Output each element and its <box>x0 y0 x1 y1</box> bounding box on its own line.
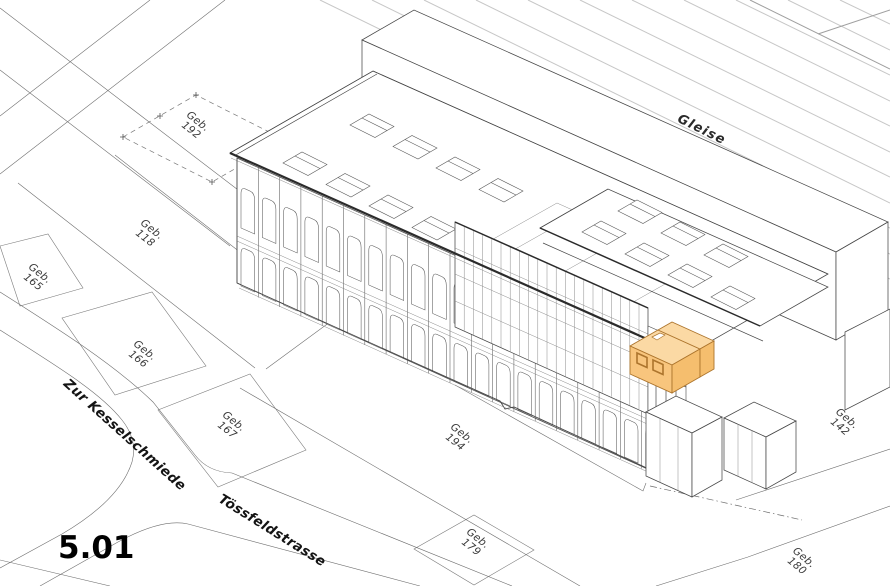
label-geb-179: Geb.179 <box>457 526 492 560</box>
label-geb-180: Geb.180 <box>783 545 818 579</box>
annex-buildings <box>646 396 796 497</box>
label-geb-142: Geb.142 <box>826 406 861 440</box>
site-plan-page: Gleise <box>0 0 890 586</box>
label-geb-165: Geb.165 <box>19 261 54 295</box>
sheet-number: 5.01 <box>58 530 135 566</box>
label-geb-166: Geb.166 <box>124 338 159 372</box>
site-axonometric-map: Gleise <box>0 0 890 586</box>
plot-geb-194-south-edge <box>240 388 580 586</box>
label-geb-194: Geb.194 <box>441 421 476 455</box>
label-geb-118: Geb.118 <box>131 217 166 251</box>
track-switch-lines <box>750 0 890 69</box>
label-geb-167: Geb.167 <box>213 409 248 443</box>
label-toessfeldstrasse: Tössfeldstrasse <box>215 491 328 570</box>
label-geb-192: Geb.192 <box>177 109 212 143</box>
label-zur-kesselschmiede: Zur Kesselschmiede <box>59 375 189 494</box>
boundary-dash-dot <box>650 486 802 520</box>
